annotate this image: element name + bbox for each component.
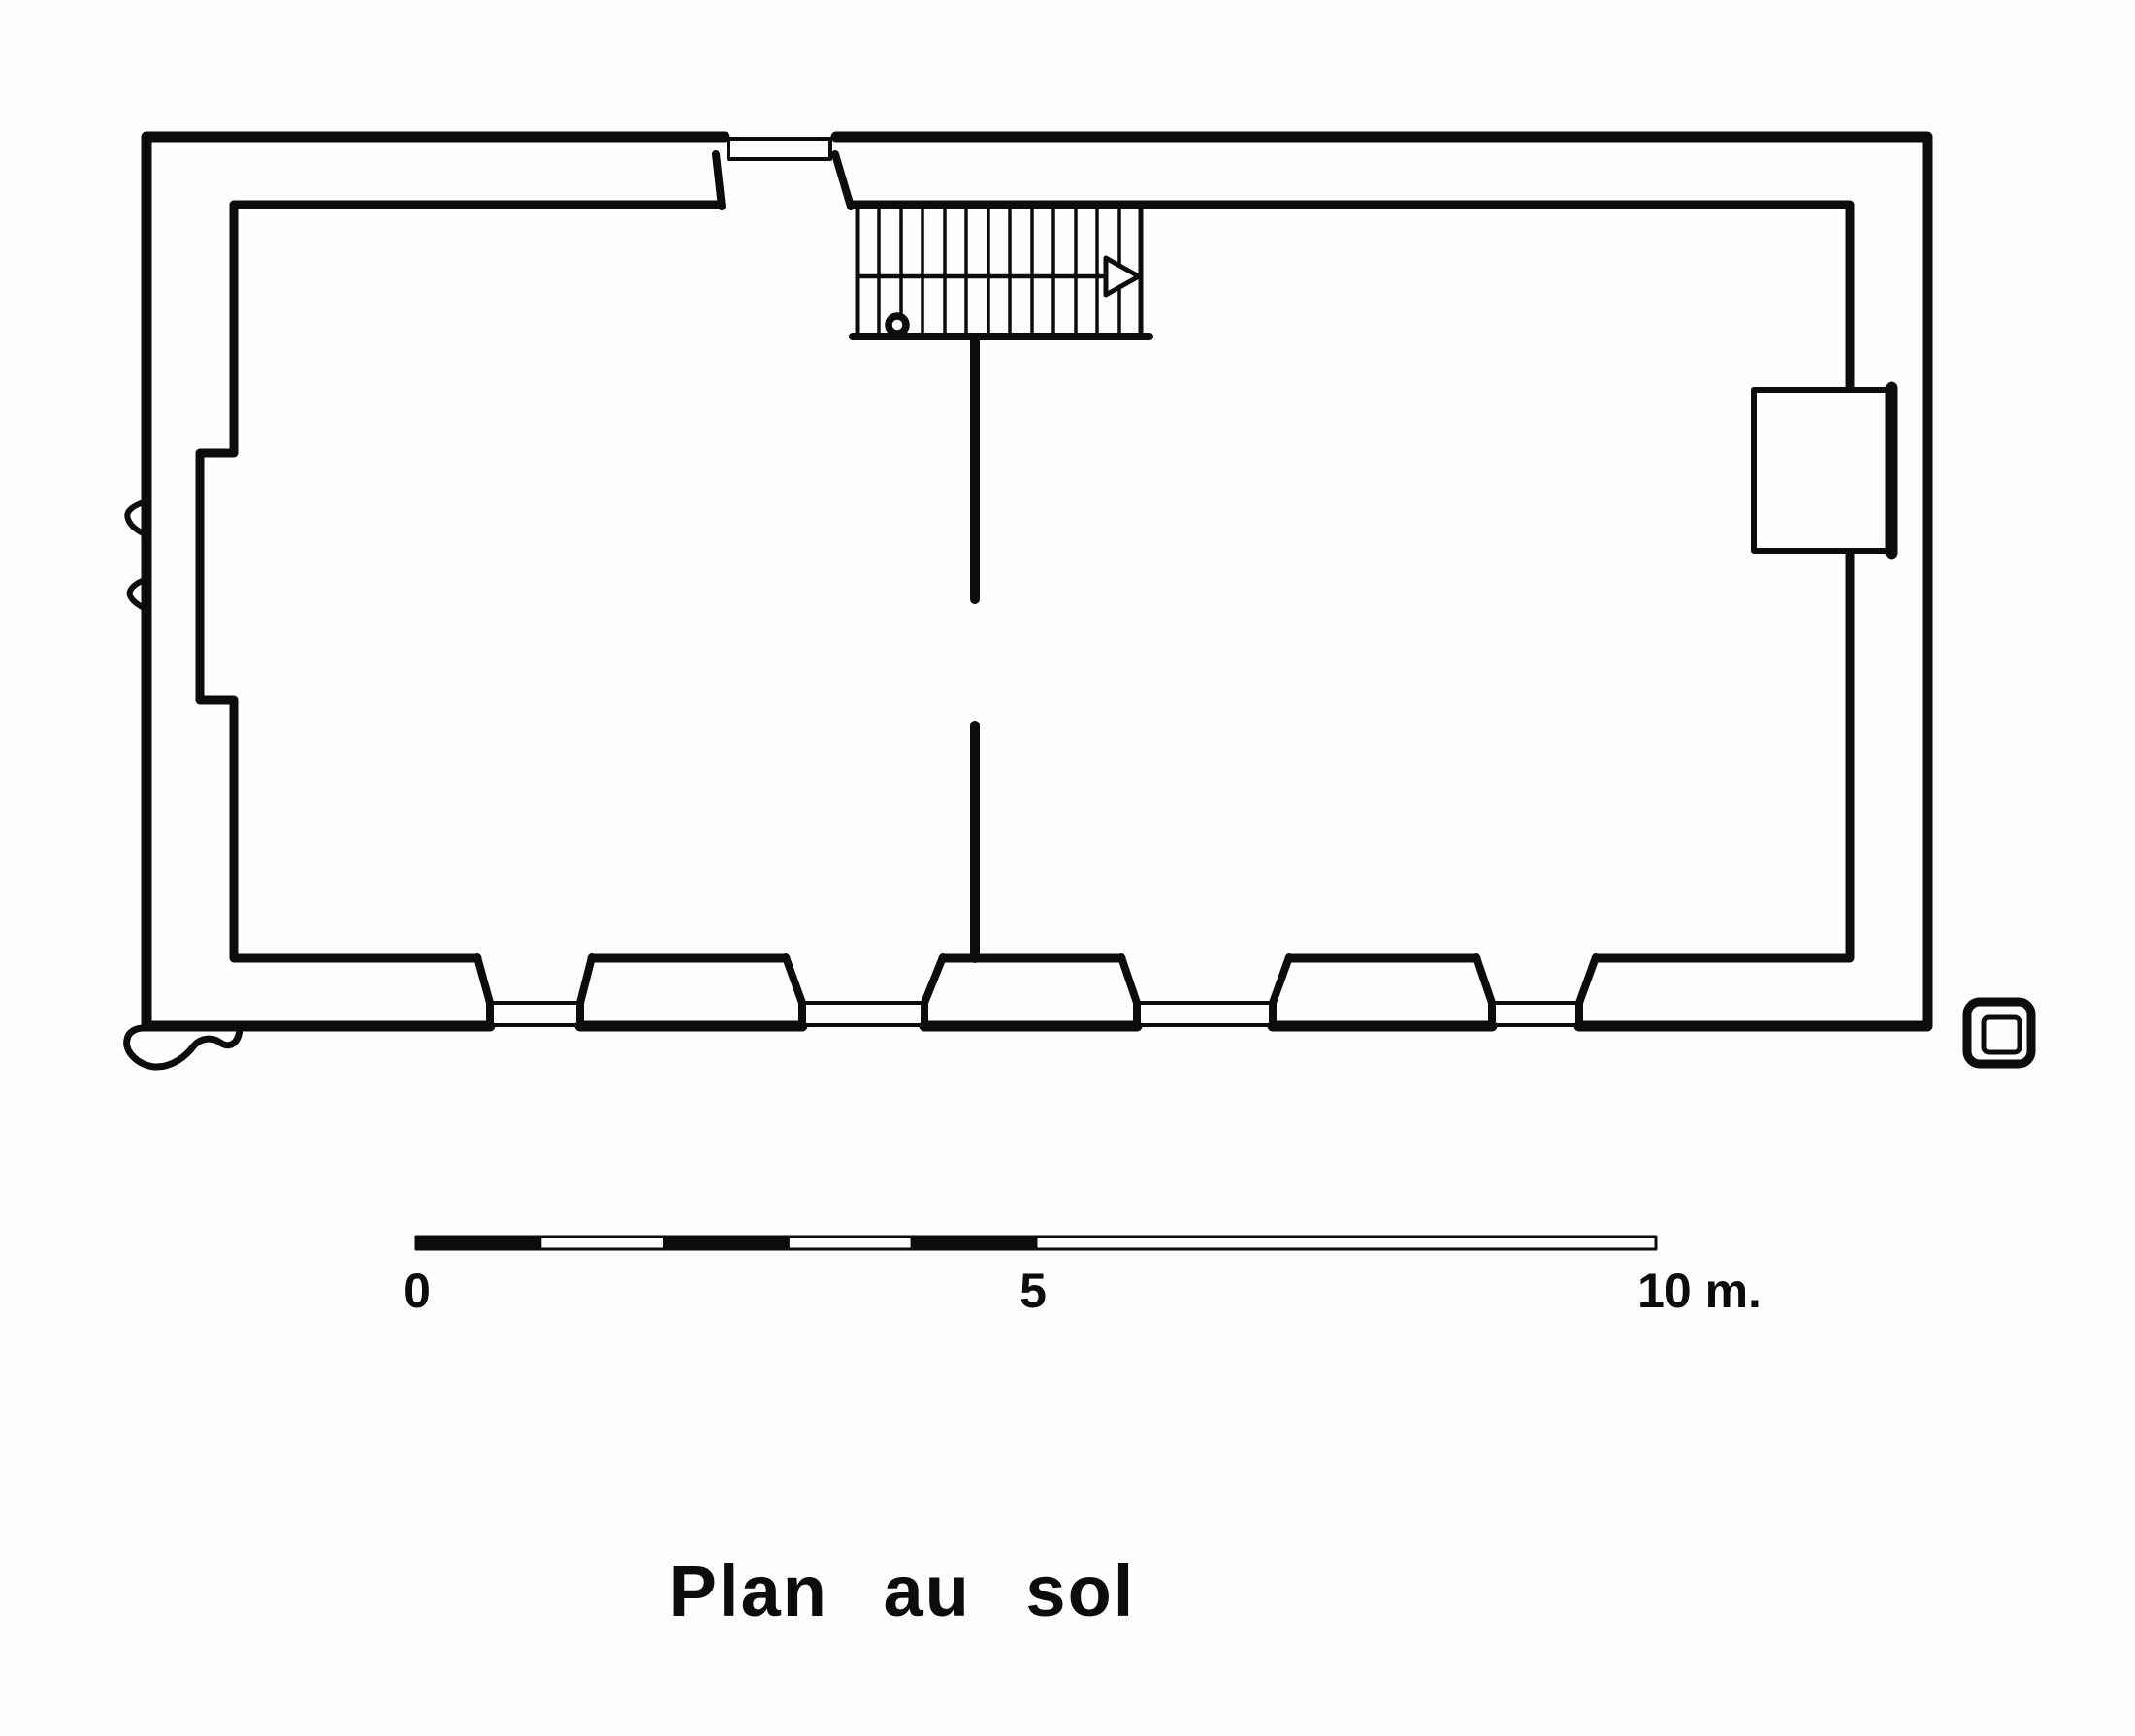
inner-wall (200, 205, 1850, 958)
window-1 (477, 957, 592, 1025)
window-jamb (1273, 957, 1289, 1021)
scale-bar-segment (1036, 1237, 1656, 1249)
stair-newel-circle (889, 316, 906, 334)
window-3 (1121, 957, 1289, 1025)
scale-bar-segment (788, 1237, 912, 1249)
scale-label-10m: 10 m. (1637, 1264, 1762, 1318)
window-jamb (1476, 957, 1492, 1021)
window-2 (786, 957, 943, 1025)
scale-label-0: 0 (404, 1264, 431, 1318)
rubble-outcrop (127, 1028, 240, 1067)
wall-niche (1754, 388, 1892, 553)
scale-bar-segment (664, 1237, 789, 1249)
plan-title: Plan au sol (524, 1550, 1280, 1632)
door-jamb-right (835, 154, 851, 207)
staircase (853, 209, 1149, 337)
scale-bar-segment (540, 1237, 664, 1249)
floor-plan-drawing: 0 5 10 m. (0, 0, 2135, 1736)
scale-bar (416, 1237, 1656, 1249)
scale-label-5: 5 (1019, 1264, 1047, 1318)
window-jamb (1579, 957, 1596, 1021)
window-jamb (477, 957, 490, 1021)
stair-direction-arrow (1106, 258, 1139, 295)
window-jamb (924, 957, 943, 1021)
scanned-floor-plan-page: 0 5 10 m. Plan au sol (0, 0, 2135, 1736)
well-symbol (1967, 1002, 2031, 1064)
door-threshold (728, 139, 830, 159)
window-jamb (580, 957, 592, 1021)
stair-treads (879, 210, 1119, 333)
window-jamb (1121, 957, 1137, 1021)
outer-wall (146, 137, 1927, 1026)
window-jamb (786, 957, 802, 1021)
entrance-doorway (716, 139, 851, 207)
scale-bar-segment (912, 1237, 1036, 1249)
scale-bar-segment (416, 1237, 540, 1249)
window-4 (1476, 957, 1596, 1025)
door-jamb-left (716, 154, 722, 207)
